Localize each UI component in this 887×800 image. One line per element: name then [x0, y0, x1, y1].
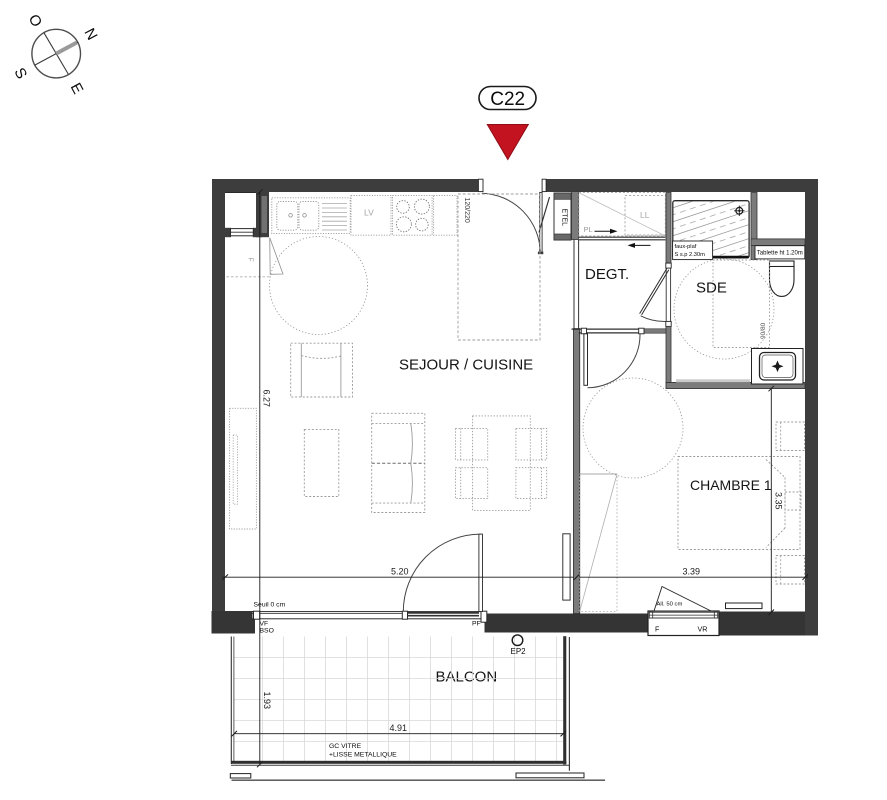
svg-text:F: F	[247, 258, 254, 262]
svg-text:GC VITRE: GC VITRE	[329, 743, 362, 750]
svg-text:1.93: 1.93	[262, 692, 272, 710]
svg-text:F: F	[655, 625, 660, 634]
svg-text:E: E	[67, 80, 87, 97]
svg-text:5.20: 5.20	[391, 567, 409, 577]
svg-text:faux-plaf: faux-plaf	[675, 244, 697, 250]
svg-text:EP2: EP2	[511, 647, 527, 656]
svg-text:6.27: 6.27	[262, 390, 272, 408]
svg-text:PF: PF	[472, 621, 481, 628]
svg-text:SEJOUR / CUISINE: SEJOUR / CUISINE	[399, 357, 533, 374]
svg-text:All. 50 cm: All. 50 cm	[657, 602, 683, 608]
svg-text:LL: LL	[640, 210, 650, 220]
svg-text:4.91: 4.91	[390, 723, 408, 733]
svg-text:S s.p 2.30m: S s.p 2.30m	[675, 252, 706, 258]
svg-text:S: S	[10, 65, 30, 82]
svg-text:BSO: BSO	[260, 628, 274, 635]
svg-text:VF: VF	[260, 621, 269, 628]
svg-text:O: O	[25, 12, 45, 30]
svg-text:90/80: 90/80	[760, 322, 767, 339]
svg-text:SDE: SDE	[696, 280, 727, 297]
svg-text:CHAMBRE 1: CHAMBRE 1	[690, 477, 772, 493]
svg-text:LV: LV	[364, 208, 374, 218]
svg-text:C22: C22	[490, 89, 525, 110]
svg-text:3.35: 3.35	[774, 492, 784, 510]
svg-text:VR: VR	[698, 625, 708, 634]
svg-text:Tablette ht 1.20m: Tablette ht 1.20m	[757, 251, 803, 257]
svg-text:BALCON: BALCON	[436, 669, 498, 686]
svg-text:+LISSE METALLIQUE: +LISSE METALLIQUE	[329, 752, 397, 759]
svg-text:DEGT.: DEGT.	[585, 266, 629, 283]
svg-text:3.39: 3.39	[683, 567, 701, 577]
svg-text:ETEL: ETEL	[561, 209, 568, 227]
svg-text:N: N	[81, 26, 101, 44]
svg-text:Seuil 0 cm: Seuil 0 cm	[254, 602, 286, 609]
svg-text:PL: PL	[584, 225, 593, 234]
svg-text:120/220: 120/220	[463, 198, 470, 223]
